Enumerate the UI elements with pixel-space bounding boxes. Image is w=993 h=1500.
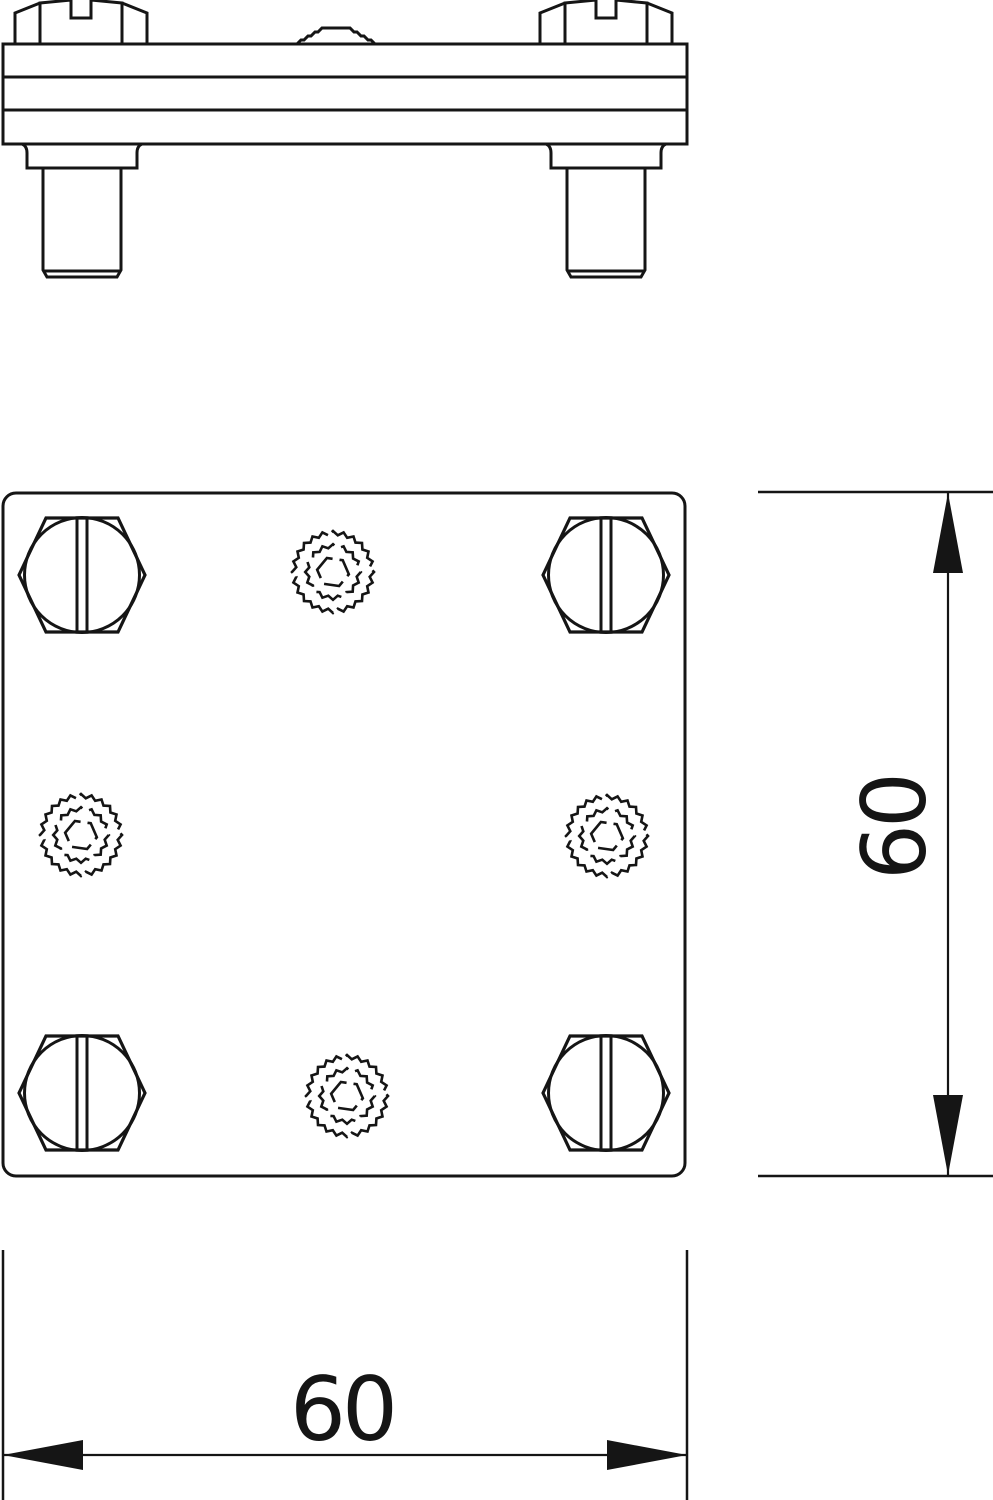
- bolt-slot: [77, 519, 87, 631]
- stud-shaft-side: [567, 168, 645, 277]
- knurl-inner-ring: [319, 1068, 375, 1124]
- stud-shaft-side: [43, 168, 121, 277]
- hex-head-outline: [543, 1036, 669, 1150]
- knurled-screw-plan: [40, 794, 122, 876]
- knurl-inner-ring: [579, 808, 635, 864]
- dimension-height-label: 60: [843, 776, 946, 880]
- dimension-height: 60: [758, 492, 993, 1176]
- bolt-washer-circle: [25, 518, 140, 633]
- dimension-width-label: 60: [290, 1358, 394, 1461]
- plate-outline-plan: [3, 493, 685, 1176]
- screw-head-side: [15, 0, 147, 44]
- plan-view-plate: [3, 493, 685, 1176]
- technical-drawing: 60 60: [0, 0, 993, 1500]
- hex-head-outline: [19, 1036, 145, 1150]
- bolt-washer-circle: [549, 1036, 664, 1151]
- hex-head-outline: [543, 518, 669, 632]
- bolt-washer-circle: [25, 1036, 140, 1151]
- knurled-dome-side: [297, 28, 375, 44]
- hex-bolt-plan: [19, 518, 145, 633]
- knurl-center-hex: [329, 1081, 364, 1111]
- hex-bolt-plan: [543, 518, 669, 633]
- knurl-center-hex: [315, 557, 350, 587]
- hex-bolt-plan: [543, 1036, 669, 1151]
- bolt-slot: [601, 519, 611, 631]
- arrowhead-up: [933, 493, 963, 573]
- hex-bolt-plan: [19, 1036, 145, 1151]
- knurl-center-hex: [63, 820, 98, 850]
- knurled-screw-plan: [292, 531, 374, 613]
- knurl-center-hex: [589, 821, 624, 851]
- plate-stack-side: [3, 44, 687, 144]
- drawing-canvas: 60 60: [0, 0, 993, 1500]
- stud-shoulder-side: [546, 144, 666, 168]
- arrowhead-left: [3, 1440, 83, 1470]
- dimension-width: 60: [3, 1250, 687, 1500]
- knurled-screw-plan: [566, 795, 648, 877]
- knurl-inner-ring: [305, 544, 361, 600]
- knurled-screw-plan: [306, 1055, 388, 1137]
- hex-head-outline: [19, 518, 145, 632]
- screw-head-side: [540, 0, 672, 44]
- knurl-inner-ring: [53, 807, 109, 863]
- arrowhead-down: [933, 1095, 963, 1175]
- side-view-connector: [3, 0, 687, 277]
- bolt-slot: [601, 1037, 611, 1149]
- stud-shoulder-side: [22, 144, 142, 168]
- bolt-washer-circle: [549, 518, 664, 633]
- arrowhead-right: [607, 1440, 687, 1470]
- bolt-slot: [77, 1037, 87, 1149]
